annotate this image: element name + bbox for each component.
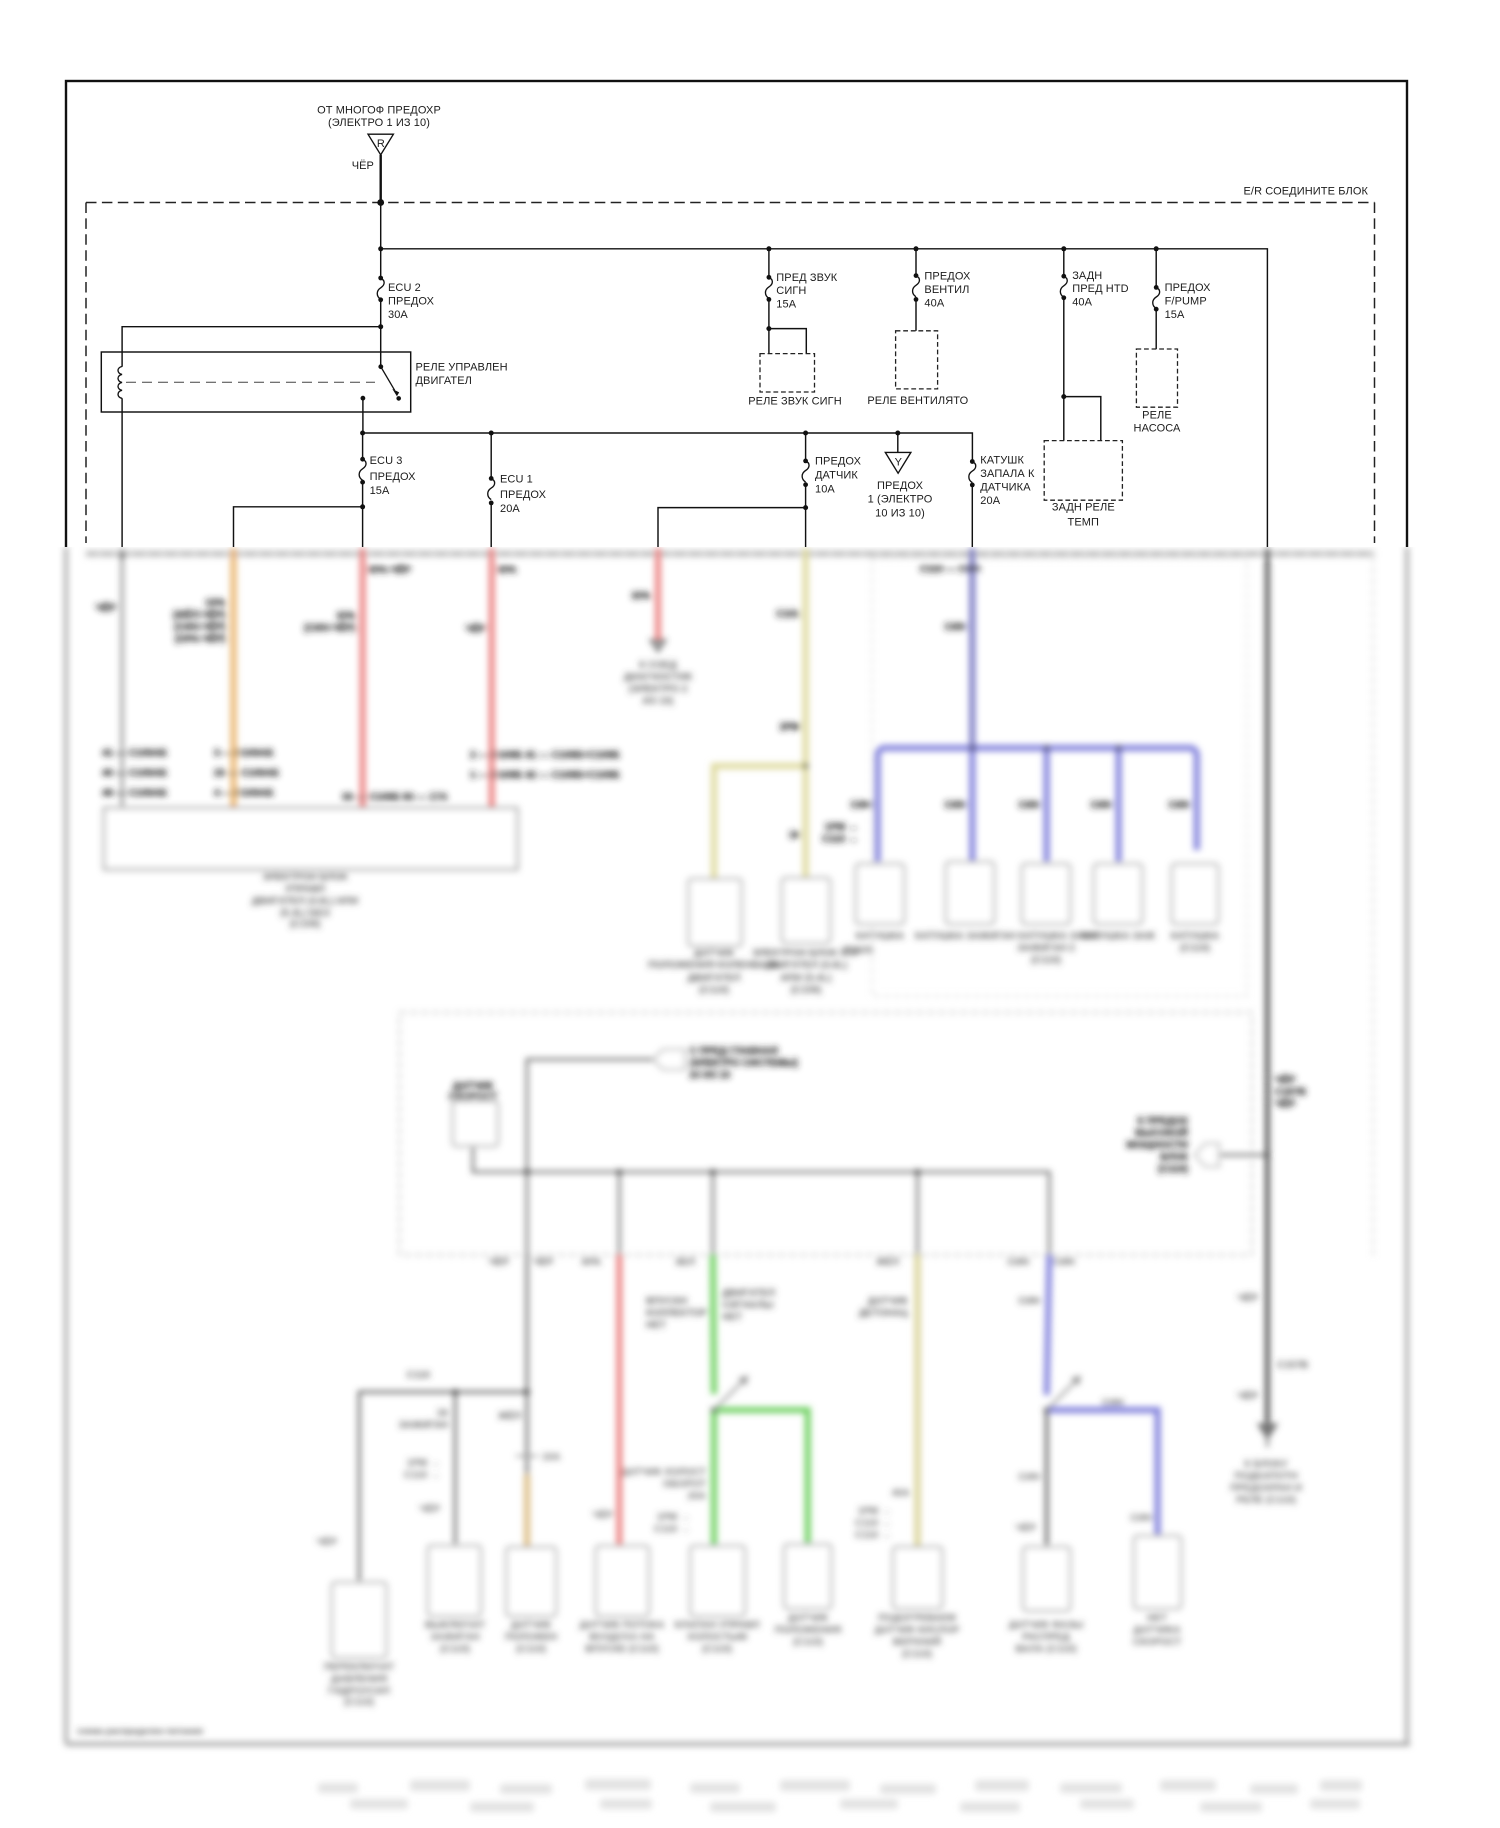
svg-text:ECU 2: ECU 2 [388, 282, 421, 294]
svg-text:ПРЕДОХ: ПРЕДОХ [388, 296, 435, 308]
svg-text:ДАТЧИК: ДАТЧИК [815, 470, 858, 482]
svg-text:ПРЕД ЗВУК: ПРЕД ЗВУК [776, 272, 837, 284]
svg-text:R: R [377, 138, 385, 150]
svg-text:1 (ЭЛЕКТРО: 1 (ЭЛЕКТРО [868, 494, 933, 506]
svg-text:ПРЕДОХ: ПРЕДОХ [924, 271, 971, 283]
svg-text:ПРЕД HTD: ПРЕД HTD [1072, 283, 1129, 295]
svg-text:ВЕНТИЛ: ВЕНТИЛ [924, 284, 969, 296]
svg-text:10 ИЗ 10): 10 ИЗ 10) [875, 507, 925, 519]
svg-text:РЕЛЕ ВЕНТИЛЯТО: РЕЛЕ ВЕНТИЛЯТО [867, 395, 968, 407]
svg-text:30A: 30A [388, 309, 408, 321]
svg-text:(ЭЛЕКТРО 1 ИЗ 10): (ЭЛЕКТРО 1 ИЗ 10) [328, 117, 430, 129]
svg-text:F/PUMP: F/PUMP [1165, 295, 1207, 307]
svg-text:E/R СОЕДИНИТЕ БЛОК: E/R СОЕДИНИТЕ БЛОК [1243, 186, 1368, 198]
svg-text:ЗАДН: ЗАДН [1072, 270, 1102, 282]
svg-text:20A: 20A [980, 495, 1000, 507]
svg-text:40A: 40A [1072, 297, 1092, 309]
svg-text:СИГН: СИГН [776, 285, 806, 297]
svg-text:ПРЕДОХ: ПРЕДОХ [815, 456, 862, 468]
svg-text:ОТ МНОГОФ ПРЕДОХР: ОТ МНОГОФ ПРЕДОХР [317, 105, 441, 117]
svg-text:КАТУШК: КАТУШК [980, 455, 1024, 467]
svg-text:ПРЕДОХ: ПРЕДОХ [500, 489, 547, 501]
svg-text:ДАТЧИКА: ДАТЧИКА [980, 482, 1031, 494]
svg-text:15A: 15A [1165, 309, 1185, 321]
svg-text:ECU 3: ECU 3 [370, 455, 403, 467]
svg-text:40A: 40A [924, 298, 944, 310]
svg-text:10A: 10A [815, 484, 835, 496]
svg-text:20A: 20A [500, 503, 520, 515]
svg-text:15A: 15A [370, 485, 390, 497]
svg-text:ПРЕДОХ: ПРЕДОХ [877, 480, 924, 492]
svg-text:ПРЕДОХ: ПРЕДОХ [1165, 282, 1212, 294]
svg-text:Y: Y [895, 457, 903, 469]
svg-text:РЕЛЕ: РЕЛЕ [1142, 410, 1172, 422]
svg-text:ECU 1: ECU 1 [500, 474, 533, 486]
svg-text:ЧЁР: ЧЁР [352, 160, 374, 172]
svg-text:ДВИГАТЕЛ: ДВИГАТЕЛ [416, 375, 472, 387]
svg-text:ПРЕДОХ: ПРЕДОХ [370, 471, 417, 483]
svg-text:ЗАДН РЕЛЕ: ЗАДН РЕЛЕ [1052, 502, 1115, 514]
svg-text:ТЕМП: ТЕМП [1068, 516, 1100, 528]
svg-text:15A: 15A [776, 299, 796, 311]
svg-text:РЕЛЕ УПРАВЛЕН: РЕЛЕ УПРАВЛЕН [416, 362, 508, 374]
svg-text:ЗАПАЛА К: ЗАПАЛА К [980, 468, 1035, 480]
svg-text:РЕЛЕ ЗВУК СИГН: РЕЛЕ ЗВУК СИГН [748, 396, 842, 408]
svg-text:НАСОСА: НАСОСА [1134, 423, 1181, 435]
